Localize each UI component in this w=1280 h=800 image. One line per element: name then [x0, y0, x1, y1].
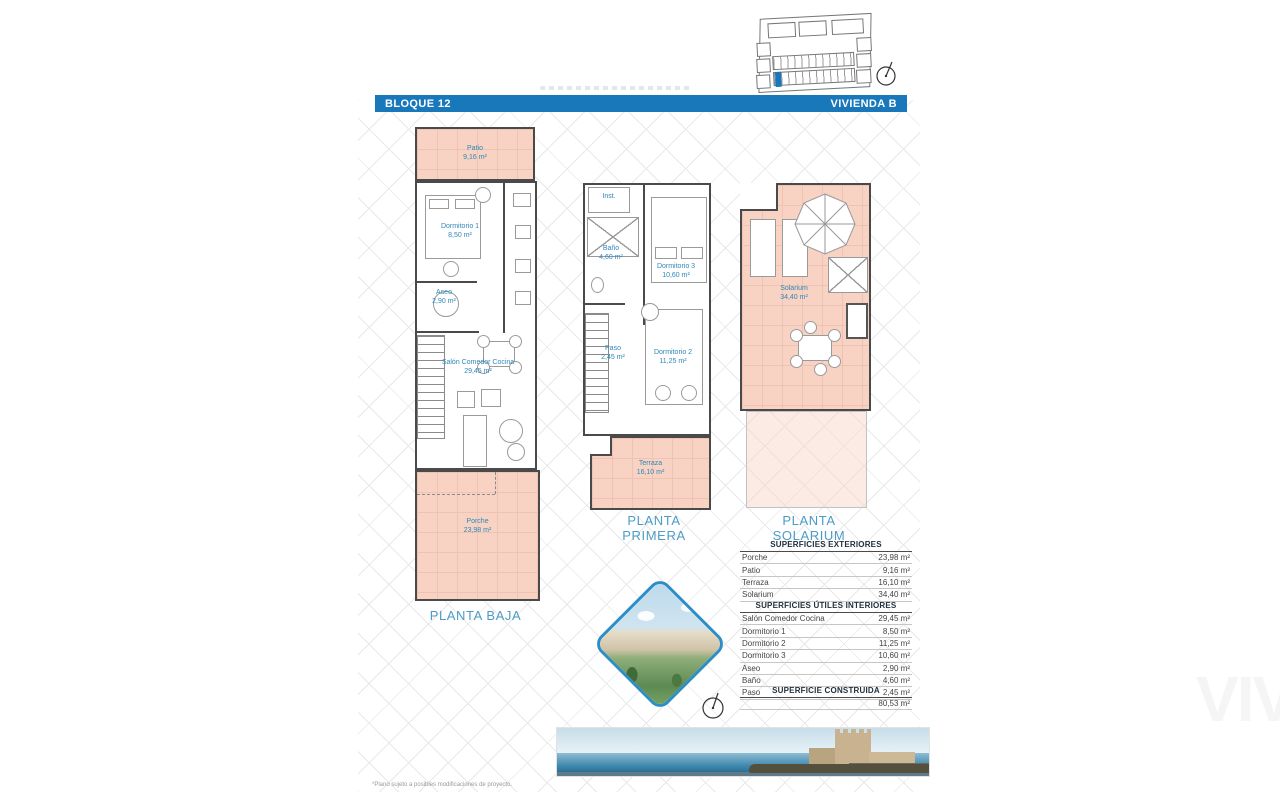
toilet — [591, 277, 604, 293]
room-label-inst: Inst. — [588, 193, 630, 202]
room-label-patio: Patio 9,16 m² — [417, 145, 533, 163]
interior-wall — [417, 281, 477, 283]
table-row: Porche23,98 m² — [740, 552, 912, 564]
row-value: 80,53 m² — [878, 699, 910, 708]
kitchen-appliance — [515, 225, 531, 239]
table-row: Aseo2,90 m² — [740, 663, 912, 675]
armchair — [481, 389, 501, 407]
row-label: Baño — [742, 676, 761, 685]
table-title: SUPERFICIES EXTERIORES — [740, 540, 912, 552]
table-row: Dormitorio 310,60 m² — [740, 650, 912, 662]
solarium-notch — [740, 183, 778, 211]
table-title: SUPERFICIES ÚTILES INTERIORES — [740, 601, 912, 613]
plant-circle — [443, 261, 459, 277]
unit-label: VIVIENDA B — [820, 98, 907, 110]
row-label: Aseo — [742, 664, 760, 673]
chair-circle — [509, 335, 522, 348]
row-value: 29,45 m² — [878, 614, 910, 623]
row-label: Terraza — [742, 578, 769, 587]
table-row: Dormitorio 18,50 m² — [740, 625, 912, 637]
row-value: 16,10 m² — [878, 578, 910, 587]
block-label: BLOQUE 12 — [375, 98, 461, 110]
floorplan-sheet: BLOQUE 12 VIVIENDA B Patio 9,16 m² Dormi… — [0, 0, 1280, 800]
chair-circle — [790, 355, 803, 368]
pillow — [455, 199, 475, 209]
chair-circle — [477, 335, 490, 348]
row-label: Dormitorio 3 — [742, 651, 786, 660]
kitchen-appliance — [515, 291, 531, 305]
room-terraza: Terraza 16,10 m² — [590, 436, 711, 510]
room-porche: Porche 23,98 m² — [415, 470, 540, 601]
table-row: Salón Comedor Cocina29,45 m² — [740, 613, 912, 625]
row-value: 2,90 m² — [883, 664, 910, 673]
row-value: 8,50 m² — [883, 627, 910, 636]
planta-primera-interior: Inst. Dormitorio 3 10,60 m² Baño 4,60 m²… — [583, 183, 711, 436]
stairwell-notch — [590, 436, 612, 456]
fine-print-smudge — [540, 86, 692, 90]
chair-circle — [814, 363, 827, 376]
beach-photo — [556, 727, 930, 777]
table-row: 80,53 m² — [740, 698, 912, 710]
plant-circle — [475, 187, 491, 203]
room-label-terraza: Terraza 16,10 m² — [592, 460, 709, 478]
row-value: 9,16 m² — [883, 566, 910, 575]
roof-terrace-below — [746, 411, 867, 508]
room-label-paso: Paso 2,45 m² — [589, 345, 637, 363]
plan-title-primera: PLANTA PRIMERA — [598, 513, 710, 543]
site-unit-block — [831, 18, 864, 35]
site-unit-block — [756, 58, 771, 73]
row-value: 10,60 m² — [878, 651, 910, 660]
plan-title-baja: PLANTA BAJA — [408, 608, 543, 623]
sofa — [463, 415, 487, 467]
table-title: SUPERFICIE CONSTRUIDA — [740, 686, 912, 698]
table-rows: Porche23,98 m²Patio9,16 m²Terraza16,10 m… — [740, 552, 912, 602]
room-label-dormitorio2: Dormitorio 2 11,25 m² — [637, 349, 709, 367]
chair-circle — [804, 321, 817, 334]
plant-circle — [655, 385, 671, 401]
room-label-dormitorio3: Dormitorio 3 10,60 m² — [641, 263, 711, 281]
site-unit-block — [756, 42, 771, 57]
armchair — [457, 391, 475, 408]
plant-circle — [681, 385, 697, 401]
site-unit-block — [767, 22, 796, 38]
stair-access-cross-box — [828, 257, 868, 293]
row-value: 4,60 m² — [883, 676, 910, 685]
kitchen-sink — [515, 259, 531, 273]
table-row: Dormitorio 211,25 m² — [740, 638, 912, 650]
sun-lounger — [750, 219, 776, 277]
site-unit-block — [798, 20, 827, 36]
planta-solarium: Solarium 34,40 m² — [740, 183, 871, 411]
plan-title-solarium: PLANTA SOLARIUM — [748, 513, 870, 543]
plant-circle — [507, 443, 525, 461]
site-unit-block — [856, 53, 872, 68]
row-label: Salón Comedor Cocina — [742, 614, 825, 623]
interior-wall — [417, 331, 479, 333]
table-superficies-exteriores: SUPERFICIES EXTERIORES Porche23,98 m²Pat… — [740, 540, 912, 602]
table-superficies-interiores: SUPERFICIES ÚTILES INTERIORES Salón Come… — [740, 601, 912, 700]
site-unit-block — [856, 37, 872, 52]
row-label: Patio — [742, 566, 760, 575]
parasol-icon — [792, 191, 858, 257]
equipment-box — [846, 303, 868, 339]
stairs — [585, 313, 609, 413]
row-label: Solarium — [742, 590, 774, 599]
kitchen-appliance — [513, 193, 531, 207]
row-value: 11,25 m² — [879, 639, 910, 648]
row-label: Dormitorio 2 — [742, 639, 786, 648]
plant-circle — [641, 303, 659, 321]
row-value: 34,40 m² — [878, 590, 910, 599]
highlighted-unit-marker — [775, 72, 782, 87]
photo-rocks — [749, 764, 929, 773]
row-label: Porche — [742, 553, 767, 562]
compass-icon — [874, 58, 900, 88]
interior-wall — [585, 303, 625, 305]
interior-wall — [503, 183, 505, 333]
table-superficie-construida: SUPERFICIE CONSTRUIDA 80,53 m² — [740, 686, 912, 710]
room-label-porche: Porche 23,98 m² — [417, 518, 538, 536]
room-label-solarium: Solarium 34,40 m² — [758, 285, 830, 303]
chair-circle — [828, 329, 841, 342]
site-location-plan — [751, 11, 877, 95]
pillow — [655, 247, 677, 259]
site-unit-block — [856, 69, 872, 84]
watermark: VIV — [1196, 662, 1280, 736]
title-bar: BLOQUE 12 VIVIENDA B — [375, 95, 907, 112]
row-value: 23,98 m² — [878, 553, 910, 562]
table-row: Patio9,16 m² — [740, 564, 912, 576]
pillow — [681, 247, 703, 259]
room-label-aseo: Aseo 2,90 m² — [419, 289, 469, 307]
site-unit-block — [756, 74, 771, 89]
porche-dashed-line — [495, 472, 496, 494]
footnote: *Plano sujeto a posibles modificaciones … — [372, 782, 512, 788]
porche-dashed-line — [417, 494, 495, 495]
room-patio: Patio 9,16 m² — [415, 127, 535, 181]
stairs — [417, 335, 445, 439]
plant-circle — [499, 419, 523, 443]
room-label-dormitorio1: Dormitorio 1 8,50 m² — [429, 223, 491, 241]
table-row: Terraza16,10 m² — [740, 577, 912, 589]
table-rows: 80,53 m² — [740, 698, 912, 710]
room-label-salon: Salón Comedor Cocina 29,45 m² — [425, 359, 531, 377]
outdoor-table — [798, 335, 832, 361]
row-label: Dormitorio 1 — [742, 627, 786, 636]
table-row: Solarium34,40 m² — [740, 589, 912, 601]
planta-baja-interior: Dormitorio 1 8,50 m² Aseo 2,90 m² Salón … — [415, 181, 537, 470]
compass-icon — [700, 690, 726, 720]
chair-circle — [828, 355, 841, 368]
room-label-bano: Baño 4,60 m² — [587, 245, 635, 263]
pillow — [429, 199, 449, 209]
chair-circle — [790, 329, 803, 342]
